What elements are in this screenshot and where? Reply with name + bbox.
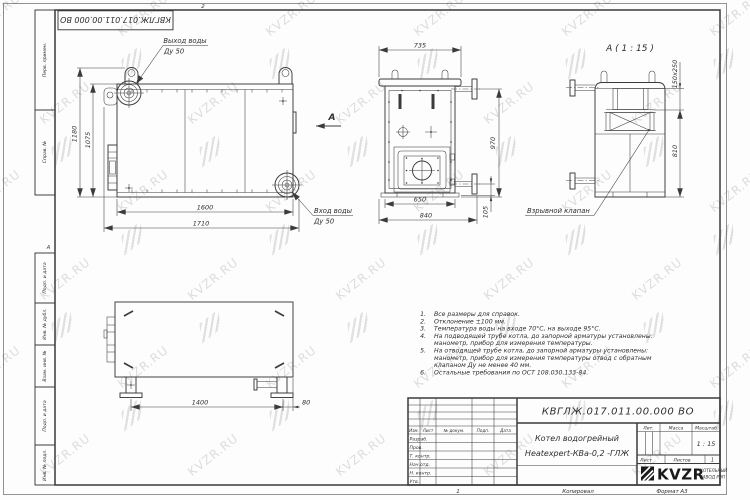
rear-bracket: [104, 317, 115, 362]
stamp-inv-podl: Инв. № подл.: [42, 449, 48, 481]
logo-sub-line2: ЗАВОД РЭП: [700, 475, 726, 480]
stamp-vzam-inv: Взам. инв. №: [42, 350, 48, 381]
inlet-label: Вход воды: [314, 207, 353, 215]
kvzr-logo: KVZR КОТЕЛЬНЫЙ ЗАВОД РЭП: [640, 466, 728, 484]
left-margin-stamps: Перв. примен. Справ. № Подп. и дата Инв.…: [35, 10, 55, 485]
view-a-arrow: А: [316, 113, 341, 126]
valve-label: Взрывной клапан: [527, 207, 590, 215]
dim-1710: 1710: [193, 220, 210, 228]
note-text: На подводящей трубе котла, до запорной а…: [434, 332, 653, 340]
rear-dimensions: 1400 80: [131, 378, 310, 411]
zone-letter: А: [46, 245, 51, 251]
footer-copied: Копировал: [562, 489, 594, 495]
scanned-drawing-sheet: KVZR.RUKVZR.RUKVZR.RUKVZR.RUKVZR.RUKVZR.…: [0, 0, 750, 500]
product-name-line2: Heatexpert-КВа-0,2 -ГЛЖ: [525, 449, 630, 458]
note-text: манометр, прибор для измерения температу…: [434, 354, 652, 362]
stamp-sprav-no: Справ. №: [42, 141, 48, 164]
dim-650: 650: [414, 196, 426, 204]
note-num: 5.: [420, 348, 426, 355]
drain-pipe: [254, 379, 277, 390]
fold-mark: 2: [201, 4, 205, 10]
lit-label: Лит.: [642, 426, 654, 432]
note-text: Остальные требования по ОСТ 108.030.133-…: [434, 368, 588, 376]
footer-format: Формат А3: [656, 489, 688, 495]
inlet-callout: Вход воды Ду 50: [292, 192, 353, 226]
stamp-podp-data-2: Подп. и дата: [42, 400, 48, 431]
top-stamp-text: КВГЛЖ.017.011.00.000 ВО: [60, 15, 171, 24]
note-text: манометр, прибор для измерения температу…: [434, 339, 593, 347]
side-strip: [108, 145, 117, 190]
detail-title: А ( 1 : 15 ): [605, 44, 654, 54]
top-designation-stamp: КВГЛЖ.017.011.00.000 ВО: [58, 11, 173, 30]
outlet-label: Выход воды: [163, 37, 207, 45]
drawing-sheet-svg: 2 А КВГЛЖ.017.011.00.000 ВО Перв. примен…: [0, 0, 750, 500]
dim-80: 80: [302, 399, 310, 407]
sheet-frame: 2 А: [4, 4, 727, 495]
rear-view: 1400 80: [104, 302, 310, 411]
note-num: 2.: [420, 318, 426, 325]
front-view: 1180 1075 1600 1710 Выход воды Ду 50 Вхо…: [71, 37, 354, 232]
sheet-label: Лист: [639, 458, 652, 464]
outlet-dn-label: Ду 50: [163, 48, 184, 56]
side-view: 735 970 650 840 105: [379, 42, 502, 225]
logo-sub-line1: КОТЕЛЬНЫЙ: [700, 468, 728, 473]
sheets-label: Листов: [672, 458, 690, 464]
valve-callout: Взрывной клапан: [525, 129, 650, 216]
dim-840: 840: [420, 212, 432, 220]
row-razrab: Разраб.: [410, 437, 428, 443]
note-num: 1.: [420, 311, 426, 318]
row-nach-otd: Нач.отд.: [410, 462, 431, 468]
note-num: 4.: [420, 333, 426, 340]
title-block: КВГЛЖ.017.011.00.000 ВО Котел водогрейны…: [408, 398, 728, 495]
logo-kvzr-text: KVZR: [657, 466, 705, 484]
hdr-list: Лист: [422, 428, 434, 433]
stamp-perv-primen: Перв. примен.: [42, 43, 48, 78]
dim-735: 735: [414, 42, 426, 50]
scale-label: Масштаб: [695, 426, 717, 432]
inlet-dn-label: Ду 50: [313, 218, 334, 226]
product-name-line1: Котел водогрейный: [535, 434, 619, 443]
dim-105: 105: [482, 206, 490, 218]
footer-sheet-no: 1: [456, 489, 460, 495]
lifting-lugs: [125, 68, 292, 85]
dim-970: 970: [489, 137, 497, 149]
row-t-kontr: Т. контр.: [410, 454, 431, 460]
hdr-data: Дата: [499, 428, 511, 433]
row-utv: Утв.: [410, 479, 420, 485]
corner-marks: [124, 311, 284, 368]
dim-1400: 1400: [192, 399, 209, 407]
mass-label: Масса: [669, 426, 684, 432]
note-num: 3.: [420, 326, 426, 333]
stamp-podp-data-1: Подп. и дата: [42, 262, 48, 293]
row-n-kontr: Н. контр.: [410, 471, 432, 477]
view-a-letter: А: [328, 113, 336, 123]
note-text: клапаном Ду не менее 40 мм.: [434, 362, 531, 369]
sheets-value: 1: [711, 458, 714, 464]
note-text: На отводящей трубе котла, до запорной ар…: [434, 347, 648, 355]
row-prov: Пров.: [410, 445, 423, 451]
designation: КВГЛЖ.017.011.00.000 ВО: [542, 407, 694, 418]
technical-notes: 1. Все размеры для справок. 2. Отклонени…: [420, 311, 653, 376]
dim-150x250: 150x250: [671, 60, 679, 89]
burner-door: [394, 147, 455, 192]
dim-810: 810: [671, 145, 679, 157]
detail-view-a: А ( 1 : 15 ): [525, 44, 684, 216]
note-text: Температура воды на входе 70°С, на выход…: [434, 325, 601, 333]
pipe-flanges-left: [566, 80, 599, 189]
sensor-ports: [396, 125, 437, 139]
detail-dimensions: 150x250 810: [648, 60, 684, 197]
hdr-podp: Подп.: [477, 428, 490, 433]
note-num: 6.: [420, 369, 426, 376]
dim-1180: 1180: [71, 126, 79, 143]
water-inlet-flange: [272, 170, 302, 200]
right-hinge-strip: [293, 112, 296, 133]
stamp-inv-dubl: Инв. № дубл.: [42, 308, 48, 339]
water-outlet-flange: [114, 78, 144, 108]
hdr-izm: Изм.: [409, 428, 419, 433]
outlet-callout: Выход воды Ду 50: [136, 37, 208, 84]
chimney-stub: [613, 89, 648, 110]
side-dimensions: 735 970 650 840 105: [379, 42, 502, 225]
hdr-doc-no: № докум.: [443, 428, 465, 433]
note-text: Отклонение ±100 мм.: [434, 318, 506, 325]
dim-1600: 1600: [197, 204, 214, 212]
scale-value: 1 : 15: [697, 440, 716, 448]
note-text: Все размеры для справок.: [434, 311, 520, 318]
side-bracket: [104, 88, 117, 105]
pipe-flanges-right: [451, 79, 481, 194]
explosion-valve: [604, 110, 656, 131]
datum-crosses: [125, 97, 287, 192]
dim-1075: 1075: [84, 132, 92, 149]
